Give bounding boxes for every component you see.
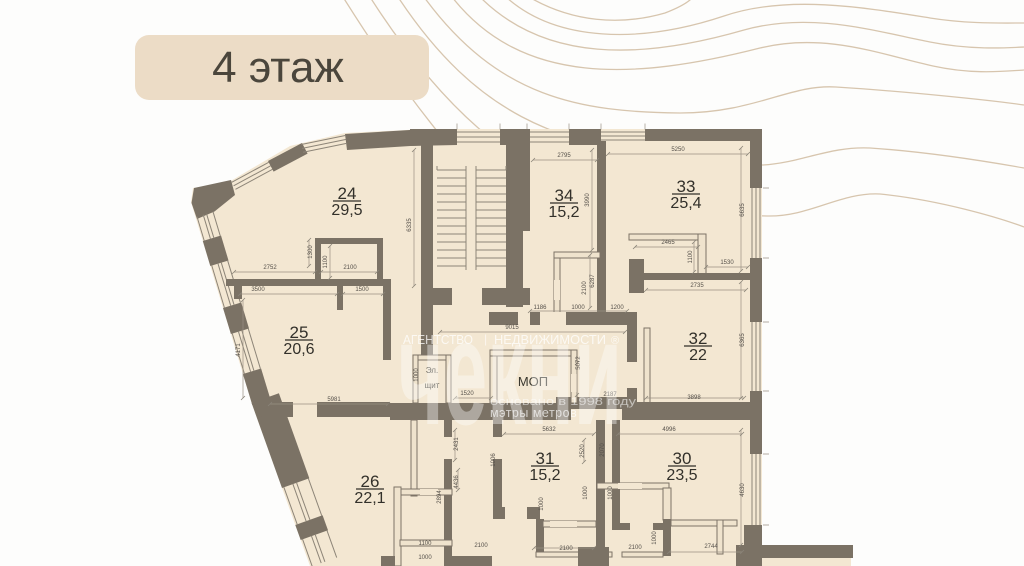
- svg-text:2744: 2744: [704, 544, 718, 550]
- svg-text:2795: 2795: [557, 153, 571, 159]
- svg-text:1000: 1000: [583, 486, 589, 500]
- svg-text:1000: 1000: [652, 531, 658, 545]
- svg-text:2100: 2100: [474, 543, 488, 549]
- svg-text:3898: 3898: [687, 395, 701, 401]
- svg-text:22: 22: [689, 347, 707, 364]
- svg-text:6365: 6365: [740, 333, 746, 347]
- svg-text:4630: 4630: [740, 483, 746, 497]
- svg-text:2100: 2100: [559, 546, 573, 552]
- svg-text:6635: 6635: [740, 203, 746, 217]
- svg-text:4436: 4436: [454, 475, 460, 489]
- svg-text:®: ®: [611, 335, 619, 347]
- svg-text:1000: 1000: [418, 555, 432, 561]
- svg-text:АГЕНТСТВО: АГЕНТСТВО: [403, 332, 473, 347]
- svg-text:30: 30: [673, 449, 692, 468]
- svg-text:2100: 2100: [343, 265, 357, 271]
- svg-text:29,5: 29,5: [331, 202, 362, 219]
- svg-text:2100: 2100: [628, 545, 642, 551]
- svg-text:|: |: [484, 332, 487, 346]
- svg-text:1530: 1530: [720, 260, 734, 266]
- svg-text:2752: 2752: [263, 265, 277, 271]
- svg-text:1500: 1500: [355, 287, 369, 293]
- svg-text:2465: 2465: [661, 240, 675, 246]
- svg-text:32: 32: [689, 329, 708, 348]
- svg-text:чекни: чекни: [398, 288, 622, 456]
- svg-text:23,5: 23,5: [666, 467, 697, 484]
- svg-text:3500: 3500: [251, 287, 265, 293]
- svg-text:1100: 1100: [419, 541, 433, 547]
- svg-text:20,6: 20,6: [283, 341, 314, 358]
- svg-text:15,2: 15,2: [529, 467, 560, 484]
- svg-text:25: 25: [290, 323, 309, 342]
- svg-text:4171: 4171: [236, 343, 242, 357]
- svg-text:1000: 1000: [539, 497, 545, 511]
- svg-text:34: 34: [555, 186, 574, 205]
- svg-text:1300: 1300: [308, 245, 314, 259]
- svg-text:2735: 2735: [690, 283, 704, 289]
- svg-text:22,1: 22,1: [354, 490, 385, 507]
- svg-text:1000: 1000: [608, 486, 614, 500]
- svg-text:4996: 4996: [662, 427, 676, 433]
- svg-text:НЕДВИЖИМОСТИ: НЕДВИЖИМОСТИ: [494, 332, 606, 347]
- svg-text:3990: 3990: [585, 193, 591, 207]
- svg-text:15,2: 15,2: [548, 204, 579, 221]
- svg-text:5250: 5250: [671, 147, 685, 153]
- svg-text:1100: 1100: [688, 250, 694, 264]
- svg-text:мэтры метров: мэтры метров: [490, 406, 577, 420]
- svg-text:6287: 6287: [590, 274, 596, 288]
- svg-text:4 этаж: 4 этаж: [212, 43, 344, 92]
- svg-text:24: 24: [338, 184, 357, 203]
- svg-text:26: 26: [361, 472, 380, 491]
- svg-text:2894: 2894: [437, 490, 443, 504]
- svg-text:6335: 6335: [407, 218, 413, 232]
- svg-text:25,4: 25,4: [670, 195, 701, 212]
- svg-text:1100: 1100: [323, 255, 329, 269]
- svg-text:33: 33: [677, 177, 696, 196]
- svg-text:5981: 5981: [327, 397, 341, 403]
